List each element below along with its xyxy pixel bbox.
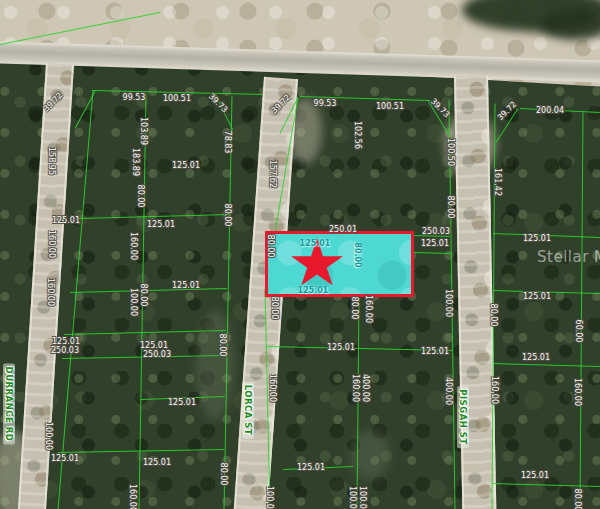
dimension-label: 100.51 bbox=[376, 102, 404, 111]
dimension-label: 160.00 bbox=[46, 278, 55, 306]
dimension-label: 102.56 bbox=[353, 121, 362, 149]
dimension-label: 80.00 bbox=[573, 489, 582, 509]
dimension-label: 183.89 bbox=[131, 148, 140, 176]
dimension-label: 125.01 bbox=[421, 347, 449, 356]
dimension-label: 125.01 bbox=[297, 463, 325, 472]
boundary-line bbox=[78, 214, 229, 219]
dimension-label: 200.04 bbox=[536, 106, 564, 115]
dimension-label: 100.00 bbox=[265, 486, 274, 509]
boundary-line bbox=[413, 252, 451, 254]
dimension-label: 80.00 bbox=[218, 334, 227, 357]
street-label-pisgah-st: PISGAH ST bbox=[457, 386, 469, 448]
dimension-label: 160.00 bbox=[490, 376, 499, 404]
boundary-line bbox=[580, 112, 584, 509]
dimension-label: 160.00 bbox=[129, 232, 138, 260]
dimension-label: 160.00 bbox=[364, 295, 373, 323]
dimension-label: 125.01 bbox=[143, 458, 171, 467]
dimension-label: 160.00 bbox=[573, 378, 582, 406]
dimension-label: 100.00 bbox=[44, 422, 53, 450]
dimension-label: 158.95 bbox=[47, 147, 56, 175]
dimension-label: 99.53 bbox=[314, 99, 337, 108]
dimension-label: 80.00 bbox=[219, 463, 228, 486]
dimension-label: 160.00 bbox=[47, 230, 56, 258]
dimension-label: 100.00 bbox=[348, 486, 357, 509]
dimension-label: 80.00 bbox=[446, 196, 455, 219]
dimension-label: 400.00 bbox=[361, 374, 370, 402]
dimension-label: 60.00 bbox=[574, 320, 583, 343]
dimension-label: 400.00 bbox=[444, 377, 453, 405]
dimension-label: 250.01 bbox=[329, 225, 357, 234]
dimension-label: 80.00 bbox=[139, 284, 148, 307]
dimension-label: 125.01 bbox=[521, 471, 549, 480]
dimension-label: 161.42 bbox=[493, 168, 502, 196]
boundary-line bbox=[493, 363, 600, 367]
dimension-label: 99.53 bbox=[123, 93, 146, 102]
dimension-label: 125.01 bbox=[52, 337, 80, 346]
street-label-durrance-rd: DURRANCE RD bbox=[3, 364, 15, 445]
stellar-mls-watermark: Stellar MLS bbox=[537, 248, 600, 266]
dimension-label: 125.01 bbox=[52, 216, 80, 225]
highlighted-parcel-dimension-label: 80.00 bbox=[353, 242, 362, 267]
dimension-label: 80.00 bbox=[223, 204, 232, 227]
dimension-label: 125.01 bbox=[140, 341, 168, 350]
dimension-label: 80.00 bbox=[489, 304, 498, 327]
dimension-label: 80.00 bbox=[270, 297, 279, 320]
dimension-label: 160.00 bbox=[128, 484, 137, 509]
dimension-label: 125.01 bbox=[172, 281, 200, 290]
boundary-line bbox=[493, 483, 600, 487]
highlighted-parcel-dimension-label: 125.01 bbox=[300, 239, 331, 248]
boundary-line bbox=[70, 288, 227, 293]
dimension-label: 250.03 bbox=[143, 350, 171, 359]
street-label-lorca-st: LORCA ST bbox=[242, 382, 254, 439]
boundary-line bbox=[357, 298, 360, 509]
dimension-label: 125.01 bbox=[421, 239, 449, 248]
dimension-label: 80.00 bbox=[136, 185, 145, 208]
boundary-line bbox=[58, 449, 224, 453]
dimension-label: 250.03 bbox=[51, 346, 79, 355]
dimension-label: 125.01 bbox=[172, 161, 200, 170]
dimension-label: 125.01 bbox=[168, 398, 196, 407]
highlighted-parcel[interactable] bbox=[265, 231, 414, 297]
dimension-label: 125.01 bbox=[51, 454, 79, 463]
dimension-label: 100.51 bbox=[163, 94, 191, 103]
dimension-label: 157.62 bbox=[268, 160, 277, 188]
clearing-patch bbox=[196, 310, 234, 420]
dimension-label: 80.00 bbox=[266, 235, 275, 258]
dimension-label: 39.73 bbox=[207, 92, 230, 115]
dimension-label: 125.01 bbox=[147, 220, 175, 229]
dimension-label: 160.00 bbox=[351, 374, 360, 402]
dimension-label: 80.00 bbox=[350, 297, 359, 320]
aerial-parcel-map[interactable]: 99.53100.5139.7239.7339.7299.53100.5139.… bbox=[0, 0, 600, 509]
dimension-label: 103.89 bbox=[139, 117, 148, 145]
dimension-label: 125.01 bbox=[327, 343, 355, 352]
dimension-label: 100.50 bbox=[446, 138, 455, 166]
dimension-label: 78.83 bbox=[223, 131, 232, 154]
dimension-label: 125.01 bbox=[523, 292, 551, 301]
boundary-line bbox=[224, 95, 233, 509]
dimension-label: 125.01 bbox=[522, 353, 550, 362]
dimension-label: 100.00 bbox=[444, 289, 453, 317]
dimension-label: 250.03 bbox=[422, 227, 450, 236]
dimension-label: 125.01 bbox=[523, 234, 551, 243]
dimension-label: 100.00 bbox=[129, 288, 138, 316]
highlighted-parcel-dimension-label: 125.01 bbox=[298, 286, 329, 295]
dimension-label: 160.00 bbox=[268, 374, 277, 402]
dimension-label: 100.00 bbox=[358, 486, 367, 509]
